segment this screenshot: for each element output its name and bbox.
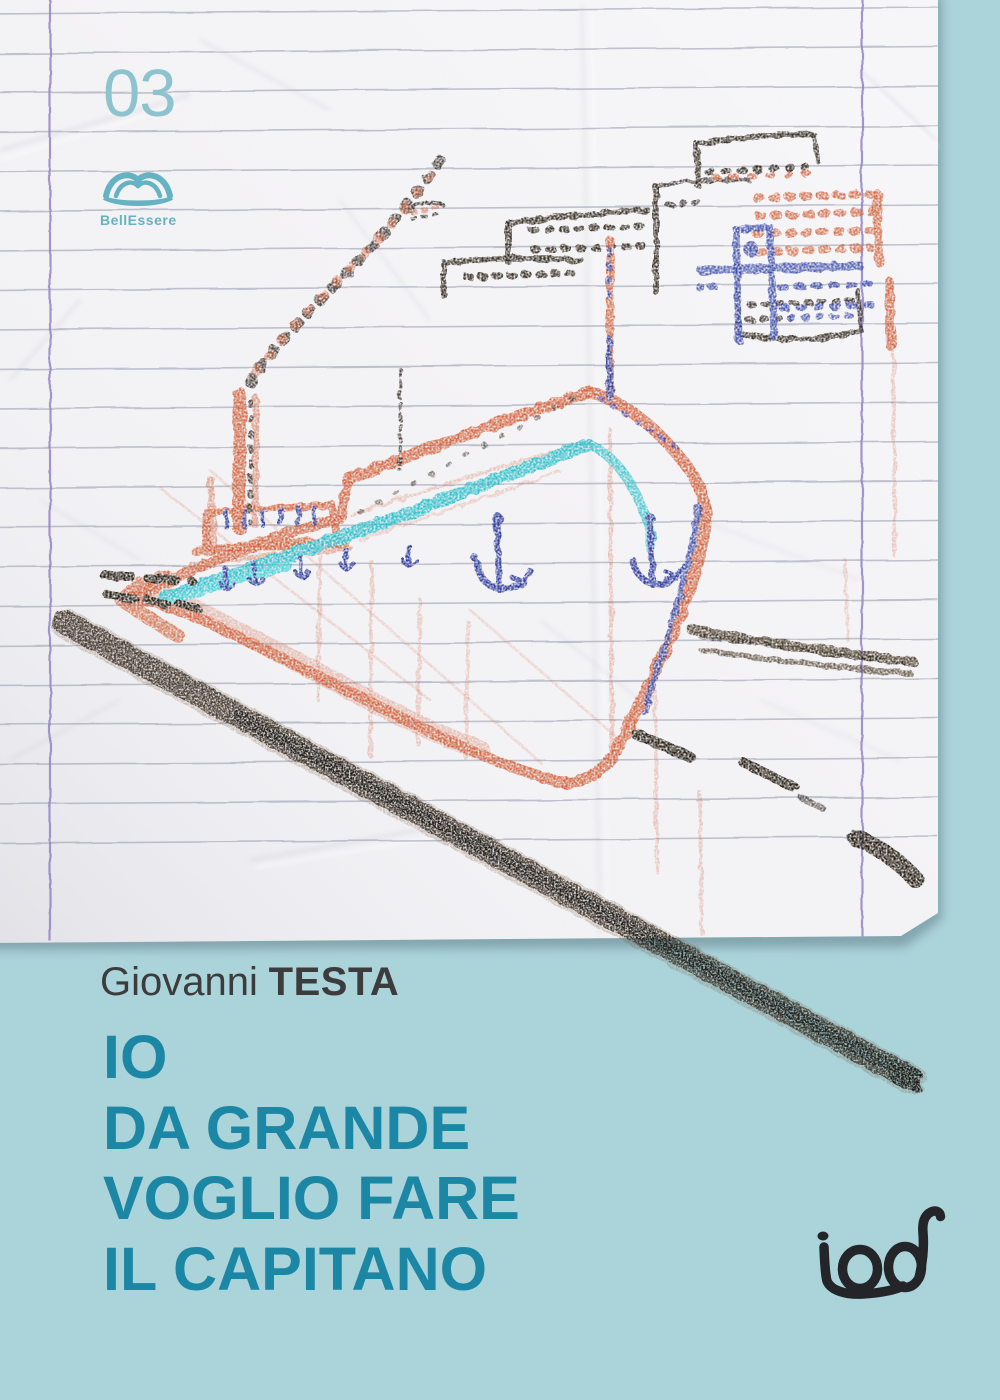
author-first-name: Giovanni (100, 960, 258, 1004)
iod-logo-icon (800, 1205, 960, 1315)
title-line-4: IL CAPITANO (103, 1234, 520, 1305)
author-last-name: TESTA (269, 960, 400, 1004)
book-cover: 03 BellEssere GiovanniTESTA IO DA GRANDE… (0, 0, 1000, 1400)
series-logo: BellEssere (100, 160, 210, 228)
title-line-1: IO (103, 1022, 520, 1093)
title-line-2: DA GRANDE (103, 1093, 520, 1164)
book-title: IO DA GRANDE VOGLIO FARE IL CAPITANO (103, 1022, 520, 1304)
notebook-paper (0, 0, 938, 943)
publisher-logo (800, 1205, 960, 1315)
open-book-icon (100, 160, 180, 206)
author-name: GiovanniTESTA (100, 960, 399, 1004)
series-number: 03 (103, 59, 176, 129)
crayon-dust (0, 0, 938, 935)
series-logo-label: BellEssere (100, 212, 210, 228)
title-line-3: VOGLIO FARE (103, 1163, 520, 1234)
